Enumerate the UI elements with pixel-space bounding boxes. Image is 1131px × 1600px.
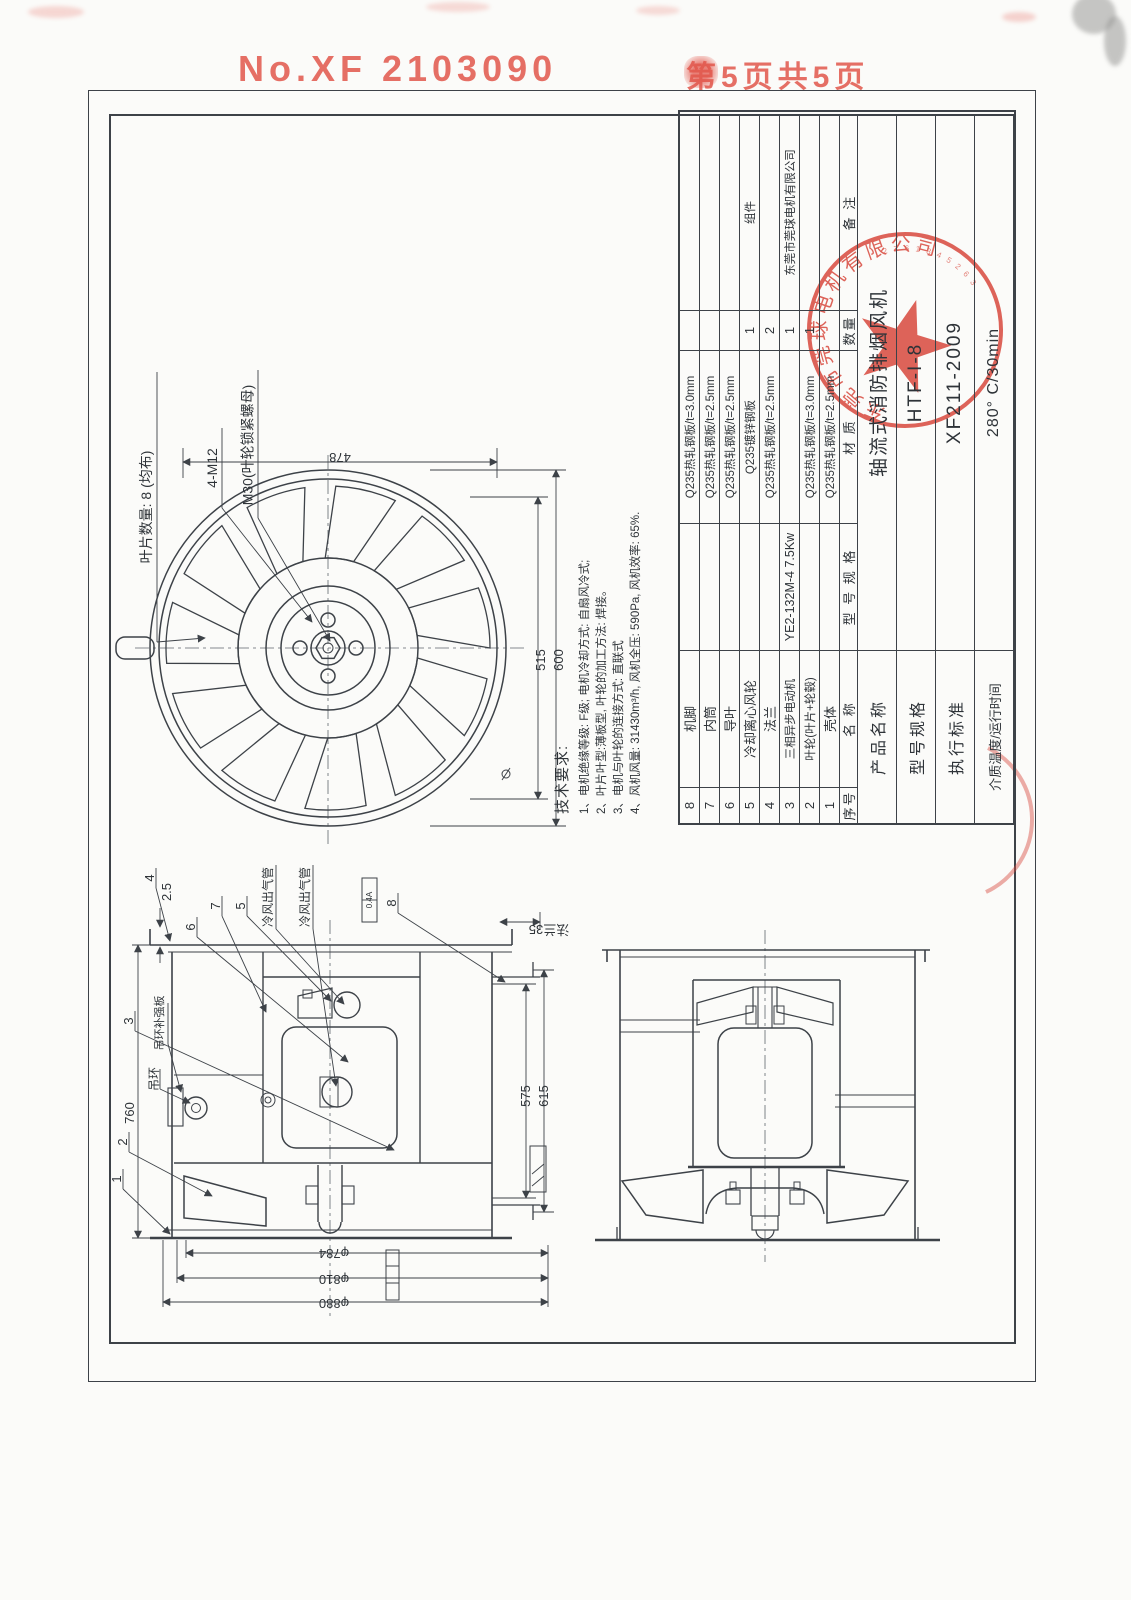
part-qty xyxy=(720,310,740,350)
part-material: Q235热轧钢板/t=3.0mm xyxy=(680,350,700,523)
standard-label: 执行标准 xyxy=(936,650,975,823)
part-qty: 2 xyxy=(760,310,780,350)
part-note: 组件 xyxy=(740,114,760,310)
temp-duration-value: 280° C/30min xyxy=(975,114,1014,650)
part-name: 法兰 xyxy=(760,650,780,787)
part-note xyxy=(760,114,780,310)
part-seq: 1 xyxy=(820,787,840,823)
impeller-blade xyxy=(305,734,366,811)
part-note xyxy=(680,114,700,310)
weld-note-label: 0.4A xyxy=(362,883,378,917)
part-qty: 1 xyxy=(800,310,820,350)
part-seq: 4 xyxy=(760,787,780,823)
section-view-right xyxy=(595,930,940,1262)
part-material: Q235热轧钢板/t=3.0mm xyxy=(800,350,820,523)
part-note xyxy=(820,114,840,310)
part-spec xyxy=(820,523,840,650)
part-spec xyxy=(800,523,820,650)
part-spec xyxy=(740,523,760,650)
tech-note-3: 3、电机与叶轮的连接方式: 直联式 xyxy=(611,452,628,814)
part-ref-1: 1 xyxy=(109,1169,125,1189)
header-name: 名 称 xyxy=(840,650,858,787)
dim-2-5: 2.5 xyxy=(159,872,175,912)
part-qty xyxy=(820,310,840,350)
dim-flange-35: 法兰35 xyxy=(513,921,585,937)
dim-478: 478 xyxy=(315,449,365,465)
header-note: 备 注 xyxy=(840,114,858,310)
part-seq: 8 xyxy=(680,787,700,823)
part-name: 三相异步电动机 xyxy=(780,650,800,787)
part-seq: 5 xyxy=(740,787,760,823)
part-material: Q235热轧钢板/t=2.5mm xyxy=(700,350,720,523)
part-name: 导叶 xyxy=(720,650,740,787)
part-ref-5: 5 xyxy=(233,896,249,916)
part-name: 内筒 xyxy=(700,650,720,787)
temp-duration-label: 介质温度/运行时间 xyxy=(975,650,1014,823)
part-name: 叶轮(叶片+轮毂) xyxy=(800,650,820,787)
part-note xyxy=(720,114,740,310)
cold-air-pipe-label-2: 冷风出气管 xyxy=(297,857,313,937)
part-qty xyxy=(700,310,720,350)
model-spec-value: HTF-I-8 xyxy=(897,114,936,650)
lifting-ring-plate-label: 吊环补强板 xyxy=(152,981,168,1065)
technical-requirements-title: 技术要求: xyxy=(552,452,575,814)
part-note: 东莞市莞球电机有限公司 xyxy=(780,114,800,310)
part-ref-7: 7 xyxy=(208,896,224,916)
part-spec xyxy=(720,523,740,650)
product-name-value: 轴流式消防排烟风机 xyxy=(858,114,897,650)
part-ref-8: 8 xyxy=(384,893,400,913)
header-material: 材 质 xyxy=(840,350,858,523)
part-ref-2: 2 xyxy=(115,1132,131,1152)
product-name-label: 产品名称 xyxy=(858,650,897,823)
impeller-front-view xyxy=(116,455,525,845)
part-seq: 2 xyxy=(800,787,820,823)
part-material xyxy=(780,350,800,523)
impeller-blade xyxy=(376,705,445,796)
part-seq: 7 xyxy=(700,787,720,823)
part-note xyxy=(700,114,720,310)
impeller-blade xyxy=(247,488,305,574)
header-qty: 数量 xyxy=(840,310,858,350)
part-seq: 6 xyxy=(720,787,740,823)
part-material: Q235热轧钢板/t=2.5mm xyxy=(720,350,740,523)
impeller-blade xyxy=(410,658,487,736)
part-note xyxy=(800,114,820,310)
tech-note-2: 2、叶片叶型:薄板型, 叶轮的加工方法: 焊接。 xyxy=(594,452,611,814)
dim-784: φ784 xyxy=(306,1245,362,1261)
dim-880: φ880 xyxy=(306,1295,362,1311)
header-spec: 型 号 规 格 xyxy=(840,523,858,650)
part-ref-4: 4 xyxy=(142,868,158,888)
blade-count-label: 叶片数量: 8 (均布) xyxy=(138,372,154,642)
dim-615: 615 xyxy=(536,1074,552,1118)
standard-value: XF211-2009 xyxy=(936,114,975,650)
dim-810: φ810 xyxy=(306,1271,362,1287)
part-seq: 3 xyxy=(780,787,800,823)
tech-note-4: 4、风机风量: 31430m³/h, 风机全压: 590Pa, 风机效率: 65… xyxy=(628,452,645,814)
part-spec xyxy=(700,523,720,650)
dim-575: 575 xyxy=(518,1074,534,1118)
dim-515: 515 xyxy=(533,640,549,680)
impeller-blade xyxy=(409,588,490,648)
part-qty: 1 xyxy=(780,310,800,350)
cold-air-pipe-label-1: 冷风出气管 xyxy=(260,857,276,937)
impeller-blade xyxy=(166,602,239,663)
model-spec-label: 型号规格 xyxy=(897,650,936,823)
part-spec xyxy=(680,523,700,650)
header-seq: 序号 xyxy=(840,787,858,823)
impeller-blade xyxy=(325,486,395,562)
part-name: 机脚 xyxy=(680,650,700,787)
part-name: 壳体 xyxy=(820,650,840,787)
part-spec: YE2-132M-4 7.5Kw xyxy=(780,523,800,650)
part-ref-3: 3 xyxy=(121,1011,137,1031)
part-ref-6: 6 xyxy=(183,917,199,937)
impeller-blade xyxy=(374,516,464,589)
part-qty: 1 xyxy=(740,310,760,350)
part-spec xyxy=(760,523,780,650)
drawing-sheet: No.XF 2103090 第5页共5页 xyxy=(0,0,1131,1600)
part-name: 冷却离心风轮 xyxy=(740,650,760,787)
title-block: 8 机脚 Q235热轧钢板/t=3.0mm 7 内筒 Q235热轧钢板/t=2.… xyxy=(678,110,1016,825)
part-material: Q235热轧钢板/t=2.5mm xyxy=(820,350,840,523)
lifting-ring-label: 吊环 xyxy=(146,1061,162,1097)
nut-spec-label: M30(叶轮锁紧螺母) xyxy=(240,338,256,553)
bolt-spec-label: 4-M12 xyxy=(204,423,220,513)
dim-760: 760 xyxy=(122,1088,138,1138)
tech-note-1: 1、电机绝缘等级: F级; 电机冷却方式: 自扇风冷式; xyxy=(577,452,594,814)
part-material: Q235镀锌钢板 xyxy=(740,350,760,523)
technical-requirements: 技术要求: 1、电机绝缘等级: F级; 电机冷却方式: 自扇风冷式; 2、叶片叶… xyxy=(552,452,660,814)
part-material: Q235热轧钢板/t=2.5mm xyxy=(760,350,780,523)
part-qty xyxy=(680,310,700,350)
